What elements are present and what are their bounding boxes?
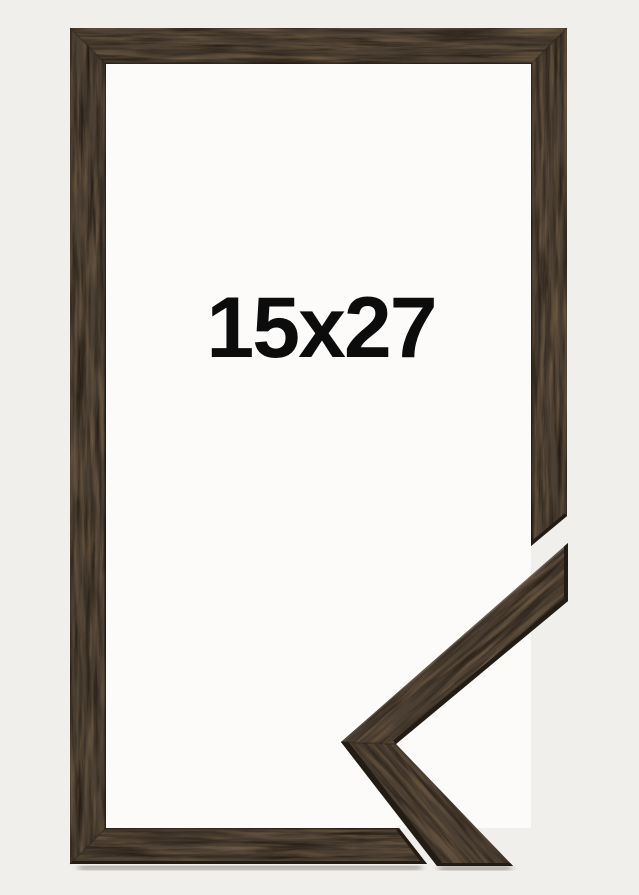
frame-interior xyxy=(106,64,531,828)
size-label: 15x27 xyxy=(206,280,435,376)
drop-shadows xyxy=(82,867,508,869)
frame-photo-svg: 15x27 xyxy=(0,0,639,895)
product-photo: 15x27 xyxy=(0,0,639,895)
